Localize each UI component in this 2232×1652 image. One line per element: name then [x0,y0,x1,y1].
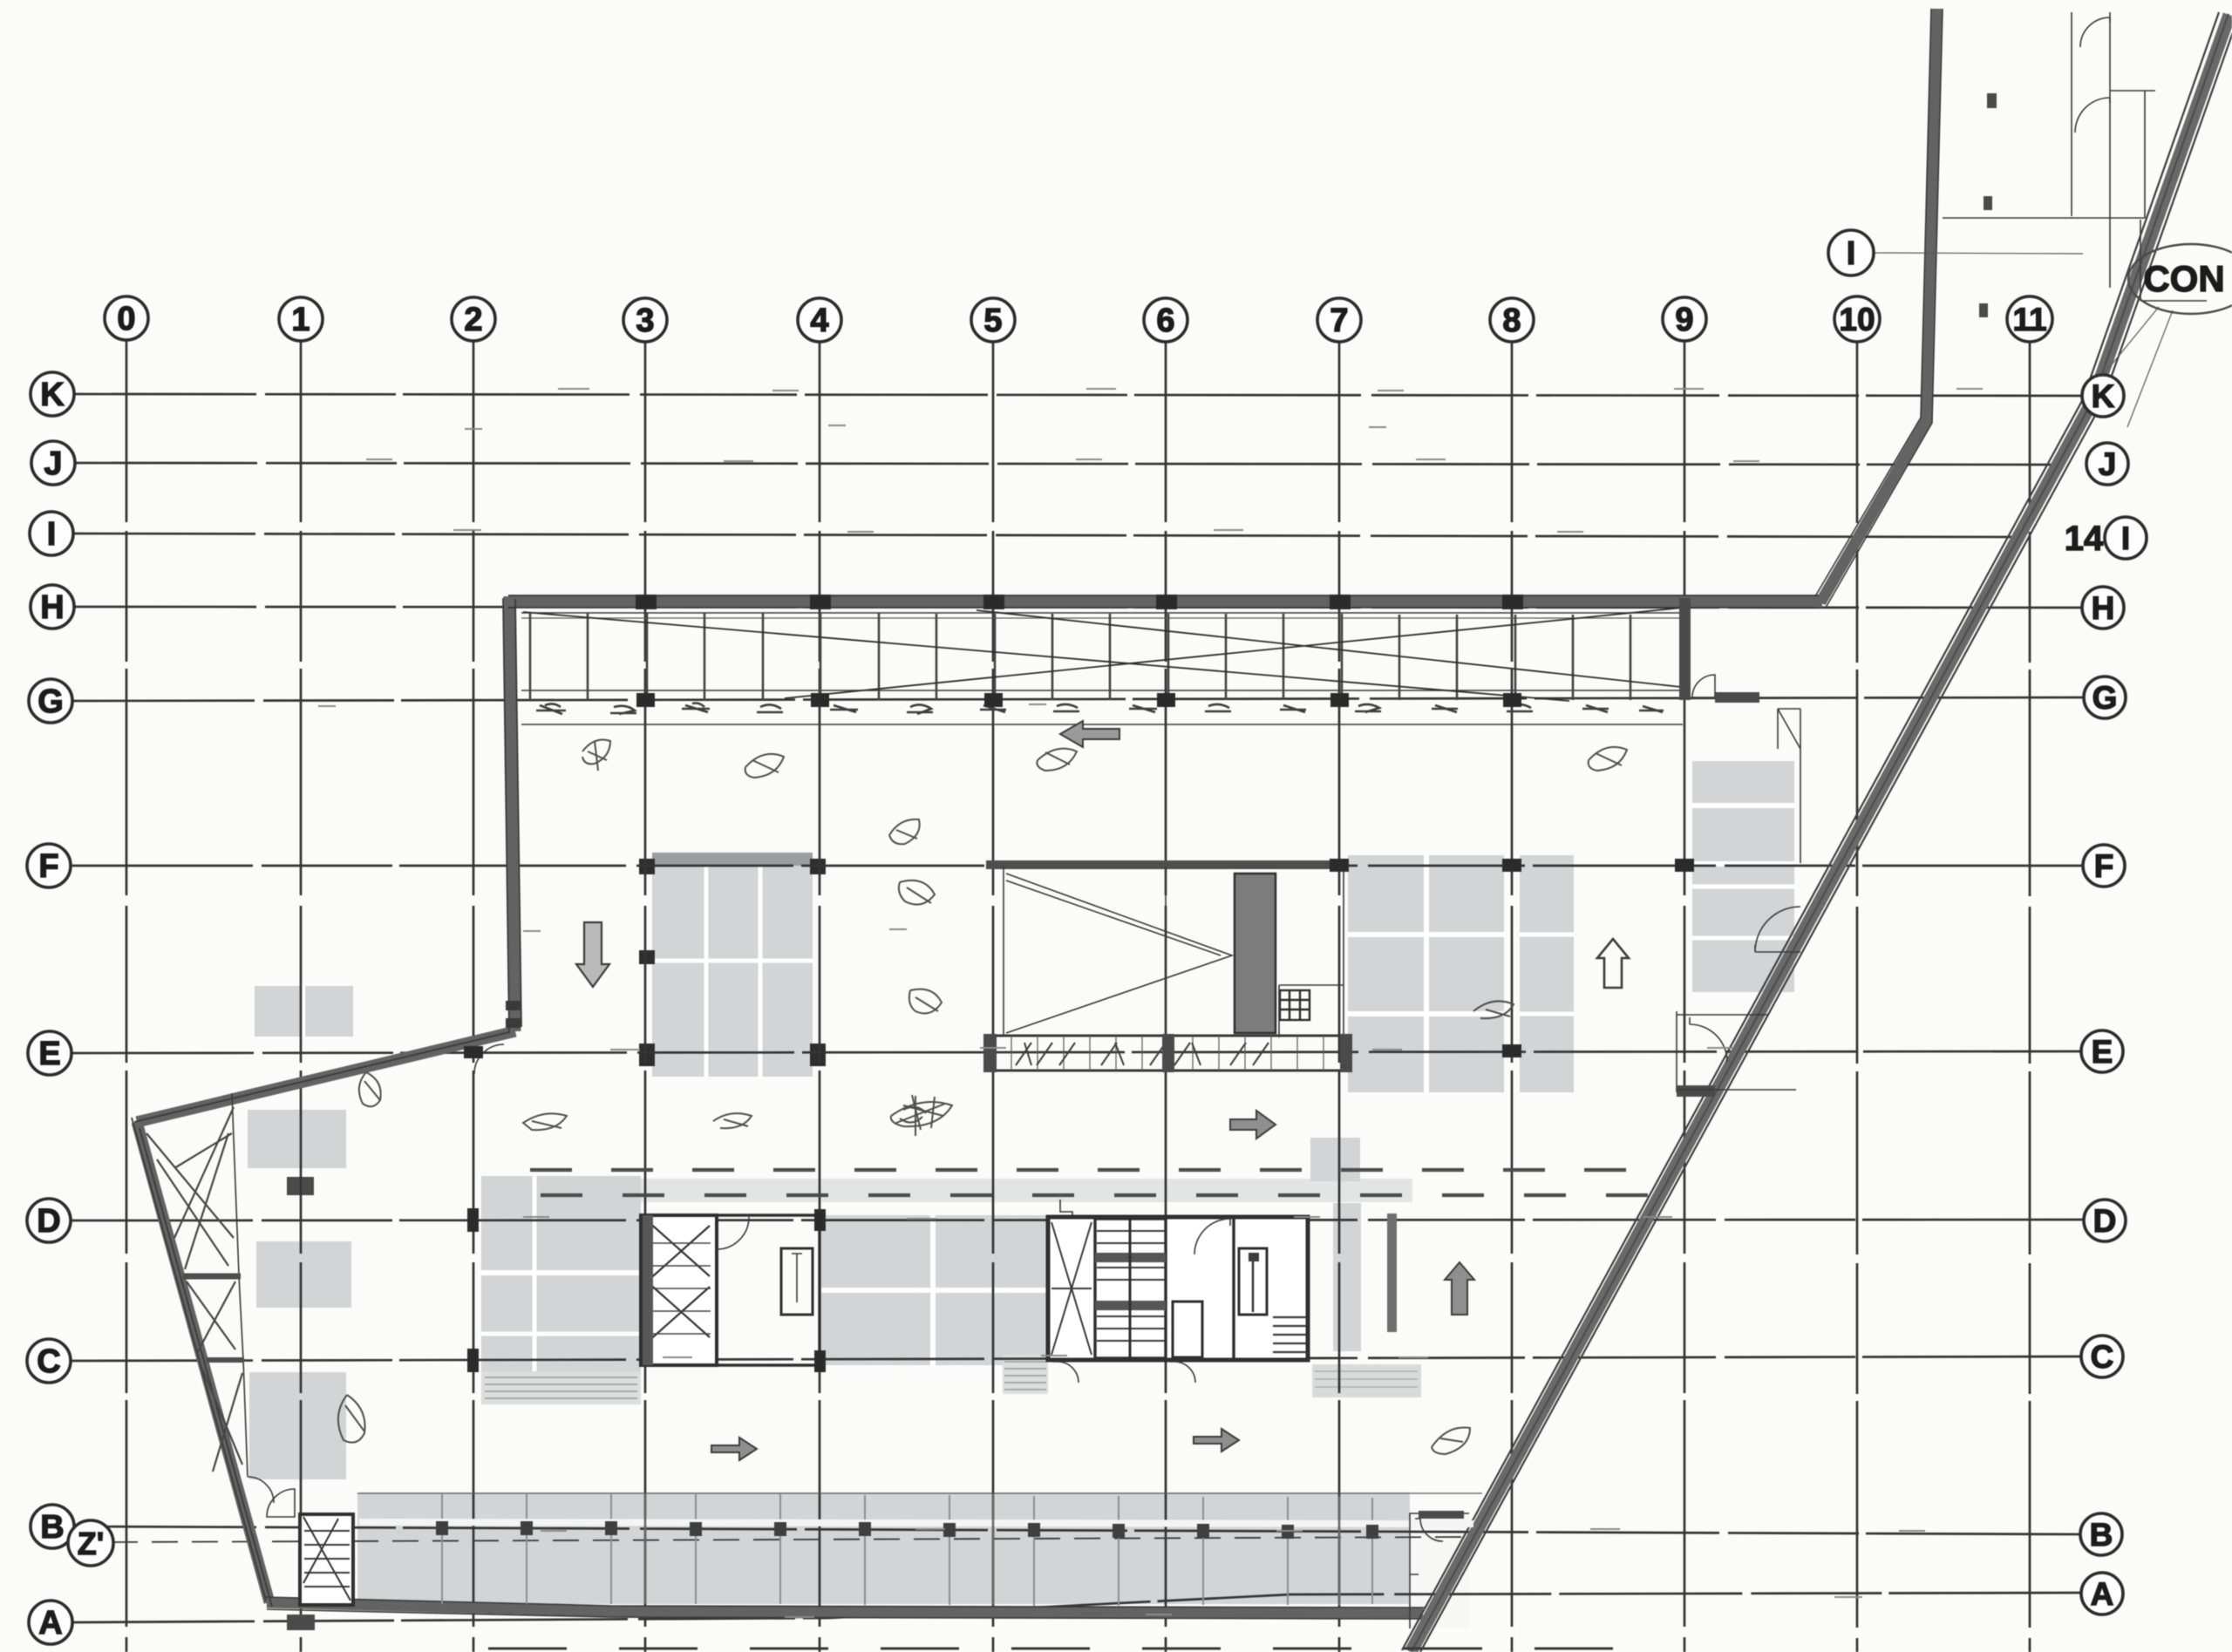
svg-text:J: J [44,445,62,482]
svg-text:10: 10 [1839,302,1875,337]
svg-text:2: 2 [464,302,482,338]
svg-text:5: 5 [983,303,1002,339]
svg-text:11: 11 [2012,302,2046,337]
svg-text:D: D [37,1203,60,1240]
svg-text:CON: CON [2143,258,2224,299]
svg-text:H: H [40,589,64,626]
svg-text:I: I [2121,520,2130,556]
svg-text:I: I [47,516,57,553]
svg-text:7: 7 [1330,303,1348,339]
svg-text:4: 4 [810,303,828,339]
svg-text:G: G [37,683,64,720]
svg-text:K: K [2092,378,2115,414]
svg-text:F: F [38,848,58,885]
svg-text:E: E [2092,1034,2113,1070]
svg-text:I: I [1847,235,1856,272]
svg-text:Z': Z' [78,1526,105,1561]
svg-text:3: 3 [636,303,654,339]
svg-text:E: E [38,1036,60,1072]
svg-text:0: 0 [117,301,135,337]
svg-text:C: C [37,1343,60,1380]
svg-text:K: K [40,377,65,413]
svg-text:6: 6 [1156,303,1174,339]
svg-text:B: B [40,1509,64,1546]
svg-text:8: 8 [1502,303,1521,339]
svg-text:A: A [2091,1576,2114,1612]
svg-text:C: C [2091,1339,2114,1375]
svg-text:H: H [2092,590,2115,626]
svg-text:A: A [38,1605,62,1642]
svg-text:14: 14 [2065,520,2104,558]
svg-text:D: D [2093,1203,2117,1239]
svg-text:9: 9 [1675,302,1693,338]
svg-text:1: 1 [291,302,310,338]
svg-text:J: J [2099,446,2117,482]
svg-text:G: G [2092,680,2118,716]
svg-text:F: F [2094,848,2114,884]
svg-text:B: B [2090,1517,2113,1553]
